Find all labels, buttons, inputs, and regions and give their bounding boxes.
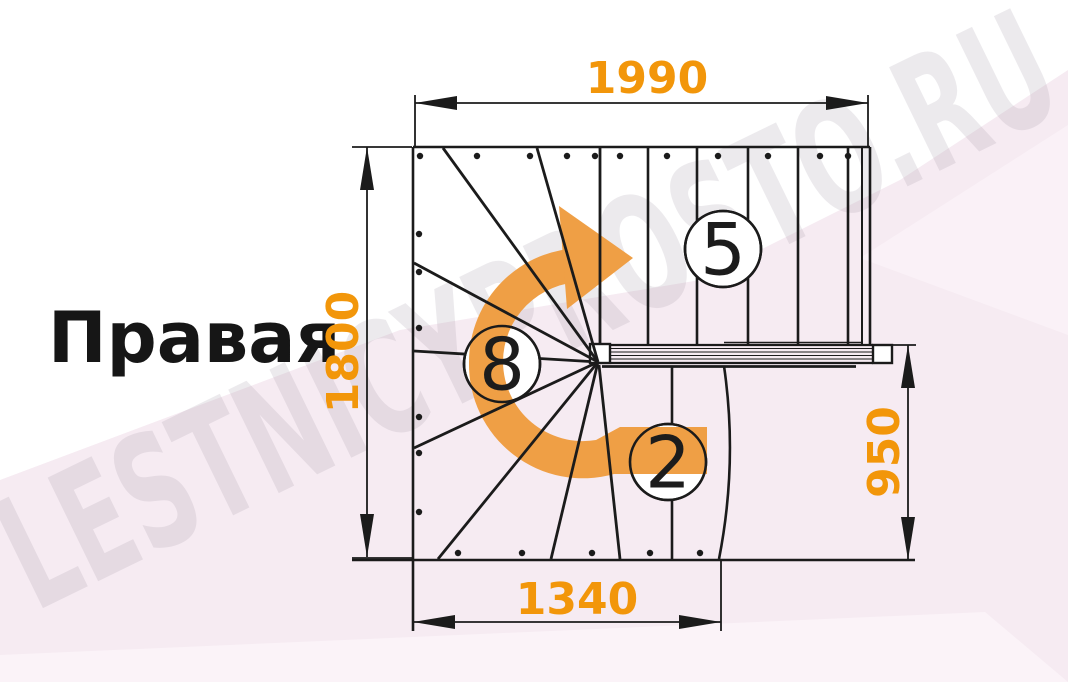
step-number-upper: 5 bbox=[700, 208, 746, 292]
step-number-lower: 2 bbox=[645, 421, 691, 505]
page-title: Правая bbox=[48, 297, 340, 379]
step-number-winder: 8 bbox=[479, 323, 525, 407]
newel-post-right bbox=[873, 345, 892, 363]
stair-plan-page: LESTNICYPROSTO.RU Правая 1990 1800 950 1… bbox=[0, 0, 1068, 682]
dimension-bottom-value: 1340 bbox=[516, 574, 638, 625]
dimension-left-value: 1800 bbox=[318, 291, 369, 413]
dimension-right-value: 950 bbox=[859, 406, 910, 498]
dimension-top-value: 1990 bbox=[586, 53, 708, 104]
